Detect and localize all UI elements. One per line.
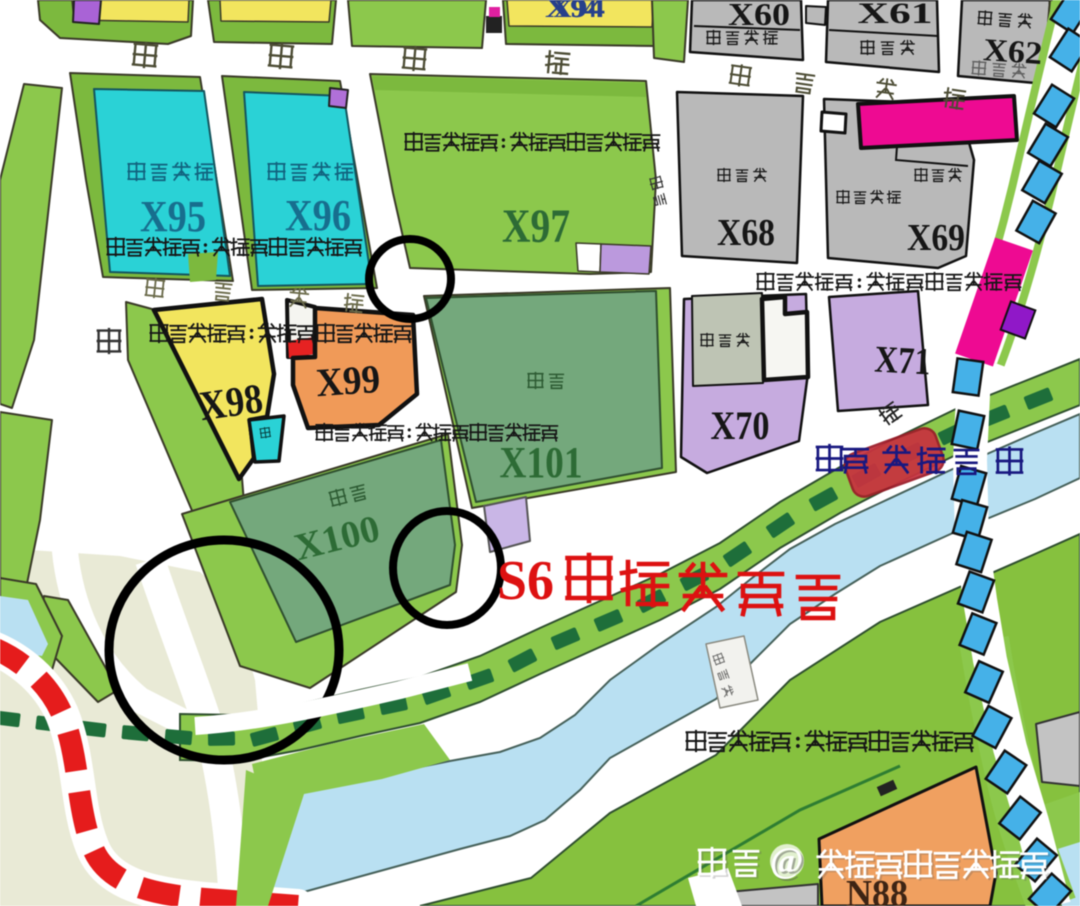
svg-text:X97: X97 — [502, 200, 570, 253]
svg-text:@: @ — [770, 840, 804, 880]
svg-text:X69: X69 — [907, 217, 965, 259]
svg-text:S6: S6 — [497, 550, 554, 612]
svg-text:X60: X60 — [728, 0, 790, 32]
svg-text:X68: X68 — [717, 212, 775, 254]
svg-text::: : — [794, 728, 802, 754]
svg-text::: : — [500, 129, 507, 153]
svg-text::: : — [406, 421, 413, 443]
svg-text::: : — [202, 234, 209, 258]
svg-text:X96: X96 — [285, 191, 351, 240]
svg-text:X94: X94 — [545, 0, 605, 23]
svg-text:X62: X62 — [982, 31, 1043, 71]
svg-text::: : — [856, 269, 863, 293]
svg-text::: : — [248, 319, 255, 344]
svg-text:X98: X98 — [197, 376, 266, 430]
svg-text:X95: X95 — [140, 192, 206, 241]
svg-text:X99: X99 — [315, 356, 382, 405]
svg-text:X70: X70 — [711, 403, 770, 448]
svg-text:X101: X101 — [500, 438, 583, 487]
svg-text:X61: X61 — [858, 0, 933, 30]
svg-text:X71: X71 — [874, 339, 932, 384]
